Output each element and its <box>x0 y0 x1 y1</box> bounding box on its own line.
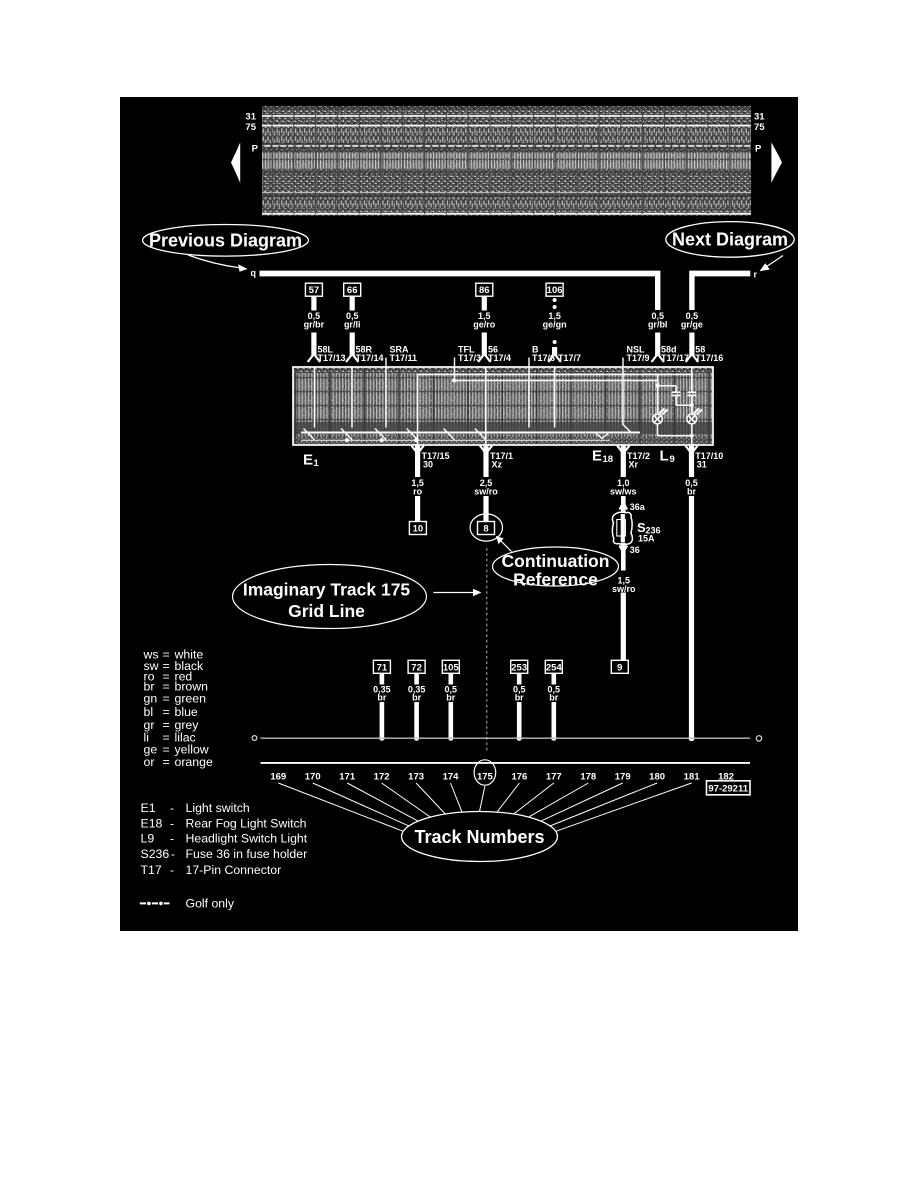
svg-text:=: = <box>163 705 170 719</box>
svg-text:17-Pin Connector: 17-Pin Connector <box>186 863 282 877</box>
svg-text:Track Numbers: Track Numbers <box>414 827 544 847</box>
svg-text:P: P <box>252 143 259 154</box>
svg-text:gr/bl: gr/bl <box>648 320 668 330</box>
svg-text:31: 31 <box>245 112 256 123</box>
svg-text:-: - <box>171 847 175 861</box>
svg-text:Imaginary Track 175: Imaginary Track 175 <box>243 580 411 600</box>
svg-text:E: E <box>592 448 602 465</box>
svg-text:18: 18 <box>603 454 614 465</box>
svg-text:176: 176 <box>511 772 527 783</box>
svg-text:10: 10 <box>413 524 424 535</box>
svg-text:T17/6: T17/6 <box>532 353 555 363</box>
svg-text:Reference: Reference <box>513 570 598 590</box>
svg-text:Xz: Xz <box>492 459 503 469</box>
svg-text:181: 181 <box>684 772 701 783</box>
svg-text:br: br <box>687 486 696 496</box>
svg-text:177: 177 <box>546 772 562 783</box>
svg-text:T17/11: T17/11 <box>390 353 418 363</box>
svg-text:106: 106 <box>547 285 563 296</box>
svg-text:71: 71 <box>377 662 388 673</box>
svg-text:31: 31 <box>697 459 707 469</box>
svg-text:Previous Diagram: Previous Diagram <box>149 230 302 250</box>
svg-text:9: 9 <box>670 454 675 465</box>
svg-text:S236: S236 <box>141 847 170 861</box>
svg-text:Headlight Switch Light: Headlight Switch Light <box>186 831 308 845</box>
svg-text:green: green <box>175 692 207 706</box>
svg-text:-: - <box>170 801 174 815</box>
svg-text:T17/17: T17/17 <box>661 353 689 363</box>
svg-text:T17/3: T17/3 <box>458 353 481 363</box>
svg-text:36: 36 <box>630 545 640 555</box>
svg-text:86: 86 <box>479 285 490 296</box>
svg-text:blue: blue <box>175 705 198 719</box>
svg-text:254: 254 <box>546 662 563 673</box>
svg-text:gr/ge: gr/ge <box>681 320 703 330</box>
svg-text:q: q <box>251 268 257 278</box>
svg-text:L9: L9 <box>141 831 155 845</box>
svg-text:P: P <box>755 143 762 154</box>
svg-text:E18: E18 <box>141 817 163 831</box>
svg-text:br: br <box>377 693 386 703</box>
svg-text:170: 170 <box>305 772 321 783</box>
svg-text:57: 57 <box>309 285 320 296</box>
svg-text:36a: 36a <box>630 502 646 512</box>
svg-text:E: E <box>303 452 313 469</box>
svg-text:orange: orange <box>175 755 213 769</box>
svg-text:75: 75 <box>245 122 256 133</box>
svg-text:Golf only: Golf only <box>186 897 235 911</box>
svg-text:gr/li: gr/li <box>344 320 361 330</box>
svg-text:-: - <box>170 831 174 845</box>
svg-text:180: 180 <box>649 772 665 783</box>
svg-text:8: 8 <box>483 524 488 535</box>
svg-text:T17/7: T17/7 <box>558 353 581 363</box>
svg-text:T17/13: T17/13 <box>318 353 346 363</box>
svg-text:Continuation: Continuation <box>502 551 610 571</box>
svg-text:Grid Line: Grid Line <box>288 601 365 621</box>
svg-text:L: L <box>660 448 669 465</box>
svg-text:bl: bl <box>144 705 154 719</box>
svg-text:Rear Fog Light Switch: Rear Fog Light Switch <box>186 817 307 831</box>
svg-text:75: 75 <box>754 122 765 133</box>
svg-text:174: 174 <box>443 772 460 783</box>
svg-text:r: r <box>754 270 758 280</box>
svg-text:175: 175 <box>477 772 494 783</box>
svg-text:15A: 15A <box>638 534 655 544</box>
svg-text:ge/ro: ge/ro <box>473 320 496 330</box>
svg-text:105: 105 <box>443 662 460 673</box>
svg-text:sw/ws: sw/ws <box>610 486 637 496</box>
svg-text:Light switch: Light switch <box>186 801 250 815</box>
svg-text:=: = <box>163 755 170 769</box>
svg-text:gr/br: gr/br <box>304 320 325 330</box>
svg-text:E1: E1 <box>141 801 156 815</box>
svg-text:72: 72 <box>411 662 422 673</box>
svg-text:br: br <box>549 693 558 703</box>
svg-text:173: 173 <box>408 772 424 783</box>
svg-text:66: 66 <box>347 285 358 296</box>
svg-text:ro: ro <box>413 486 423 496</box>
svg-text:gn: gn <box>144 692 158 706</box>
svg-text:T17/14: T17/14 <box>356 353 384 363</box>
svg-text:ge/gn: ge/gn <box>543 320 567 330</box>
svg-text:169: 169 <box>270 772 286 783</box>
svg-text:9: 9 <box>617 662 622 673</box>
svg-text:31: 31 <box>754 112 765 123</box>
svg-text:T17/16: T17/16 <box>695 353 723 363</box>
svg-text:Fuse 36 in fuse holder: Fuse 36 in fuse holder <box>186 847 308 861</box>
svg-text:Next Diagram: Next Diagram <box>672 229 788 249</box>
svg-text:Xr: Xr <box>629 459 639 469</box>
svg-text:30: 30 <box>423 459 433 469</box>
svg-text:172: 172 <box>374 772 390 783</box>
svg-text:T17: T17 <box>141 863 162 877</box>
svg-text:br: br <box>515 693 524 703</box>
svg-text:253: 253 <box>511 662 527 673</box>
svg-text:or: or <box>144 755 155 769</box>
svg-text:br: br <box>446 693 455 703</box>
svg-text:T17/4: T17/4 <box>488 353 511 363</box>
svg-text:T17/9: T17/9 <box>627 353 650 363</box>
svg-text:-: - <box>170 817 174 831</box>
svg-text:-: - <box>170 863 174 877</box>
svg-text:178: 178 <box>580 772 596 783</box>
svg-text:sw/ro: sw/ro <box>474 486 498 496</box>
svg-text:171: 171 <box>339 772 356 783</box>
svg-text:br: br <box>412 693 421 703</box>
svg-text:=: = <box>163 692 170 706</box>
svg-text:97-29211: 97-29211 <box>708 783 748 794</box>
svg-text:1: 1 <box>314 458 320 469</box>
svg-text:179: 179 <box>615 772 631 783</box>
